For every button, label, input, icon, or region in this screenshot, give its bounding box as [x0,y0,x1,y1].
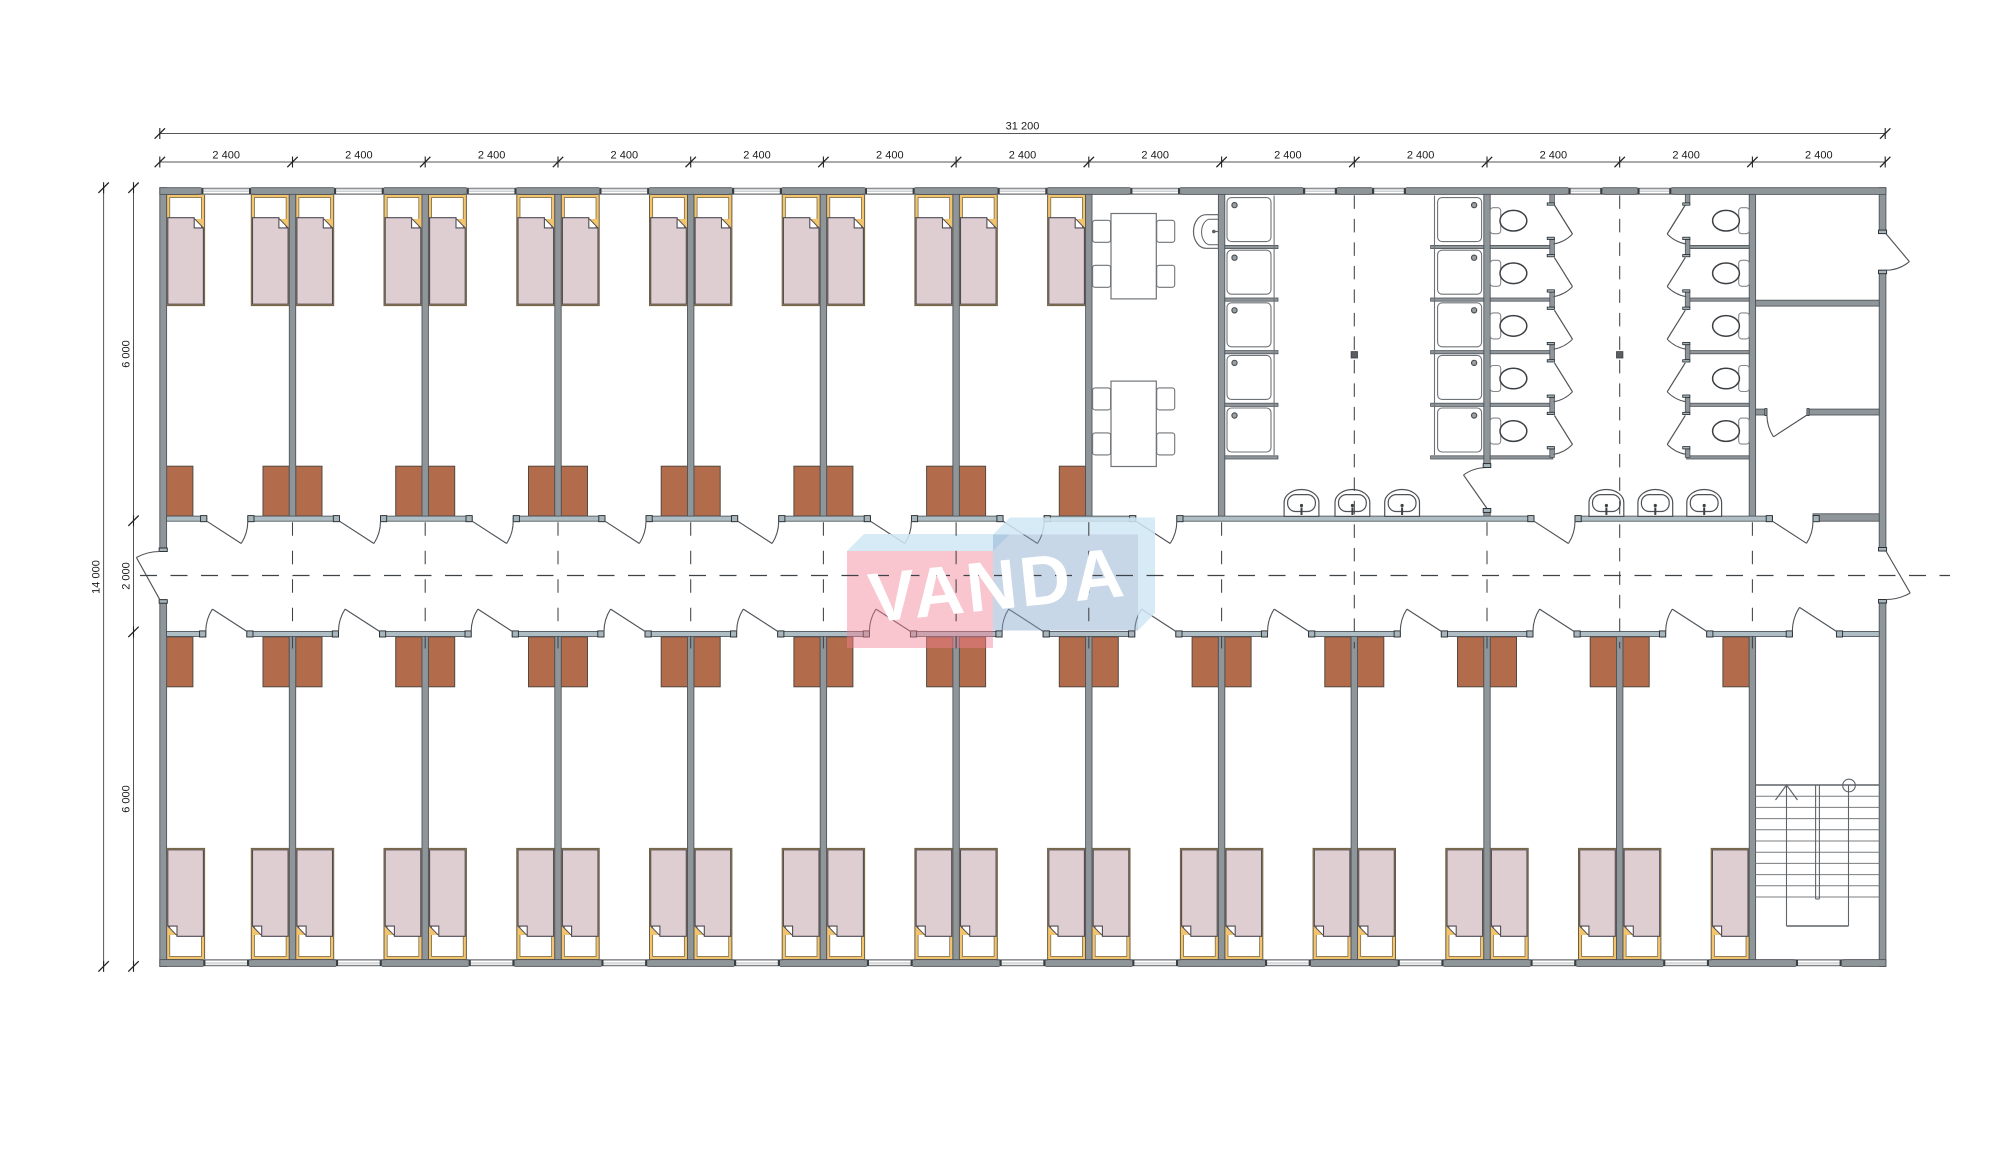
svg-text:6 000: 6 000 [121,340,133,368]
svg-text:2 400: 2 400 [1540,149,1568,161]
svg-text:14 000: 14 000 [91,560,103,594]
svg-text:2 400: 2 400 [345,149,373,161]
svg-text:2 400: 2 400 [876,149,904,161]
svg-text:2 400: 2 400 [1141,149,1169,161]
svg-text:2 000: 2 000 [121,562,133,590]
svg-text:2 400: 2 400 [1672,149,1700,161]
svg-text:2 400: 2 400 [1805,149,1833,161]
svg-text:2 400: 2 400 [611,149,639,161]
svg-text:31 200: 31 200 [1006,121,1040,133]
svg-text:6 000: 6 000 [121,785,133,813]
svg-text:2 400: 2 400 [743,149,771,161]
svg-text:2 400: 2 400 [1009,149,1037,161]
svg-text:2 400: 2 400 [1274,149,1302,161]
svg-text:2 400: 2 400 [478,149,506,161]
svg-text:2 400: 2 400 [1407,149,1435,161]
svg-text:2 400: 2 400 [212,149,240,161]
